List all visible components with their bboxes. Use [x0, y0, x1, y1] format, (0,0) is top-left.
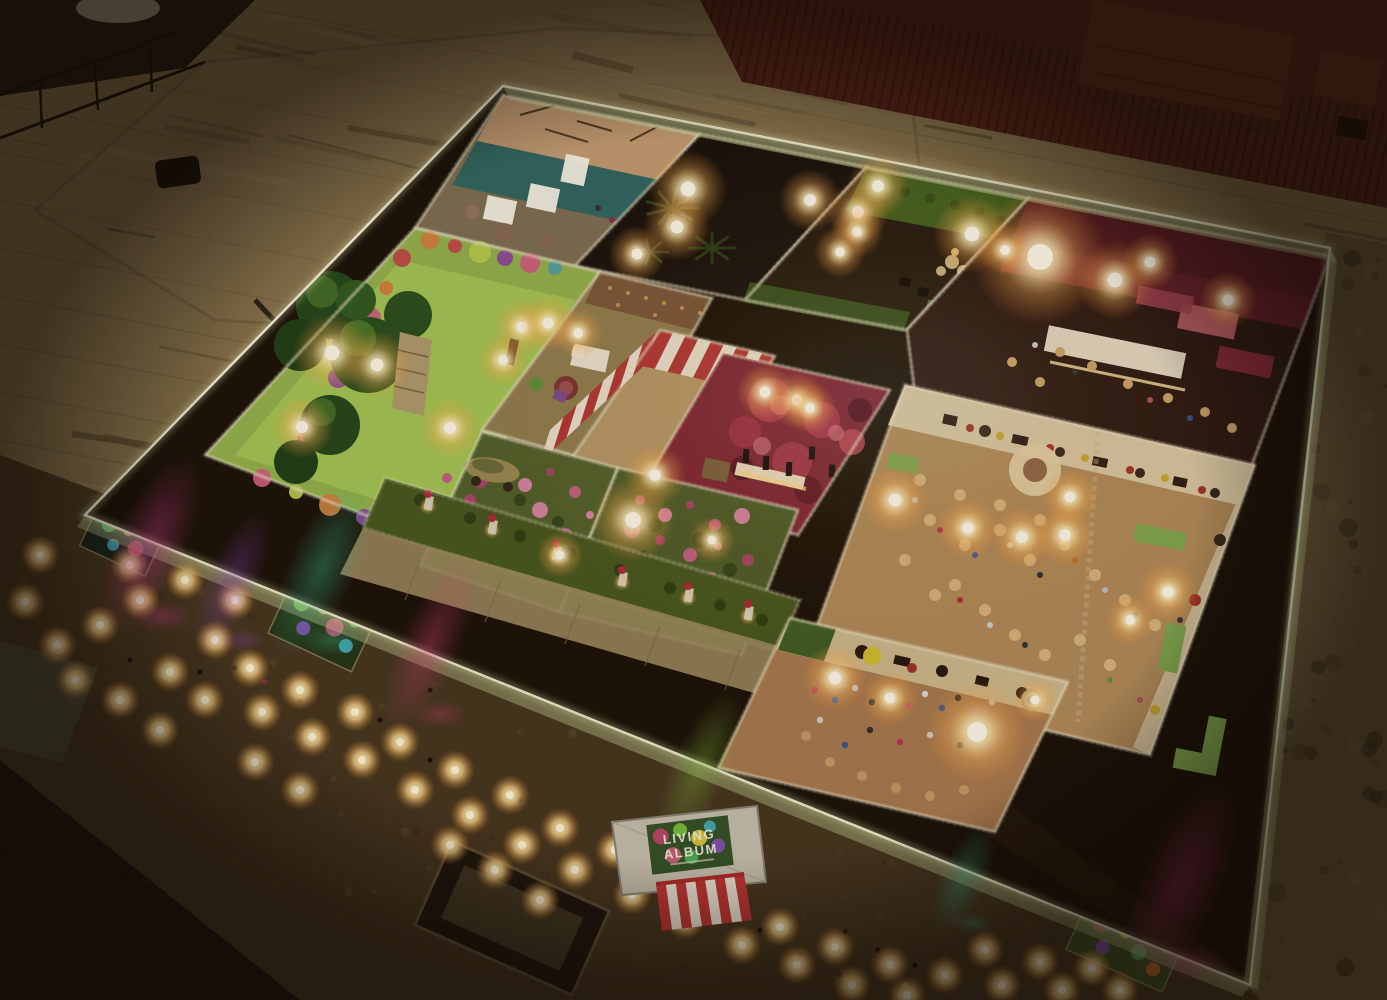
sepia-tint-overlay — [0, 0, 1387, 1000]
aerial-exhibition-rendering: LIVING ALBUM — [0, 0, 1387, 1000]
scene-canvas: LIVING ALBUM — [0, 0, 1387, 1000]
